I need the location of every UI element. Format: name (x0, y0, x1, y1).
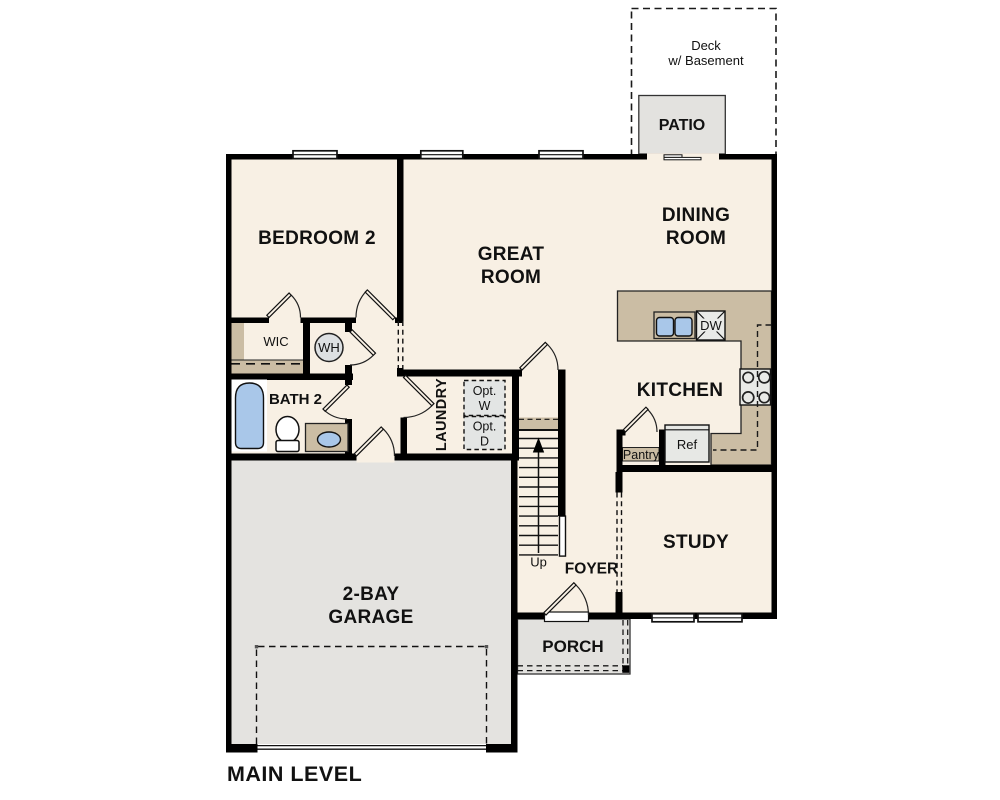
svg-text:Deck: Deck (691, 38, 721, 53)
svg-text:WIC: WIC (263, 334, 288, 349)
svg-text:Ref: Ref (677, 437, 698, 452)
svg-text:WH: WH (318, 340, 340, 355)
svg-text:ROOM: ROOM (481, 267, 541, 288)
svg-text:Pantry: Pantry (623, 448, 660, 462)
svg-text:w/ Basement: w/ Basement (667, 53, 744, 68)
svg-text:PATIO: PATIO (659, 117, 706, 134)
svg-text:DINING: DINING (662, 205, 730, 226)
svg-text:STUDY: STUDY (663, 532, 729, 553)
svg-text:BEDROOM 2: BEDROOM 2 (258, 228, 376, 249)
svg-text:W: W (479, 399, 491, 413)
svg-text:MAIN LEVEL: MAIN LEVEL (227, 762, 362, 786)
svg-text:2-BAY: 2-BAY (343, 584, 400, 605)
svg-text:ROOM: ROOM (666, 228, 726, 249)
svg-text:DW: DW (700, 318, 722, 333)
svg-text:Opt.: Opt. (473, 420, 497, 434)
svg-text:BATH 2: BATH 2 (269, 391, 322, 408)
svg-text:Up: Up (530, 555, 547, 570)
svg-text:FOYER: FOYER (565, 561, 618, 578)
svg-text:LAUNDRY: LAUNDRY (434, 378, 450, 451)
svg-text:GARAGE: GARAGE (328, 607, 413, 628)
svg-text:PORCH: PORCH (542, 637, 603, 656)
svg-text:KITCHEN: KITCHEN (637, 380, 724, 401)
svg-text:Opt.: Opt. (473, 384, 497, 398)
svg-text:GREAT: GREAT (478, 244, 545, 265)
svg-text:D: D (480, 435, 489, 449)
